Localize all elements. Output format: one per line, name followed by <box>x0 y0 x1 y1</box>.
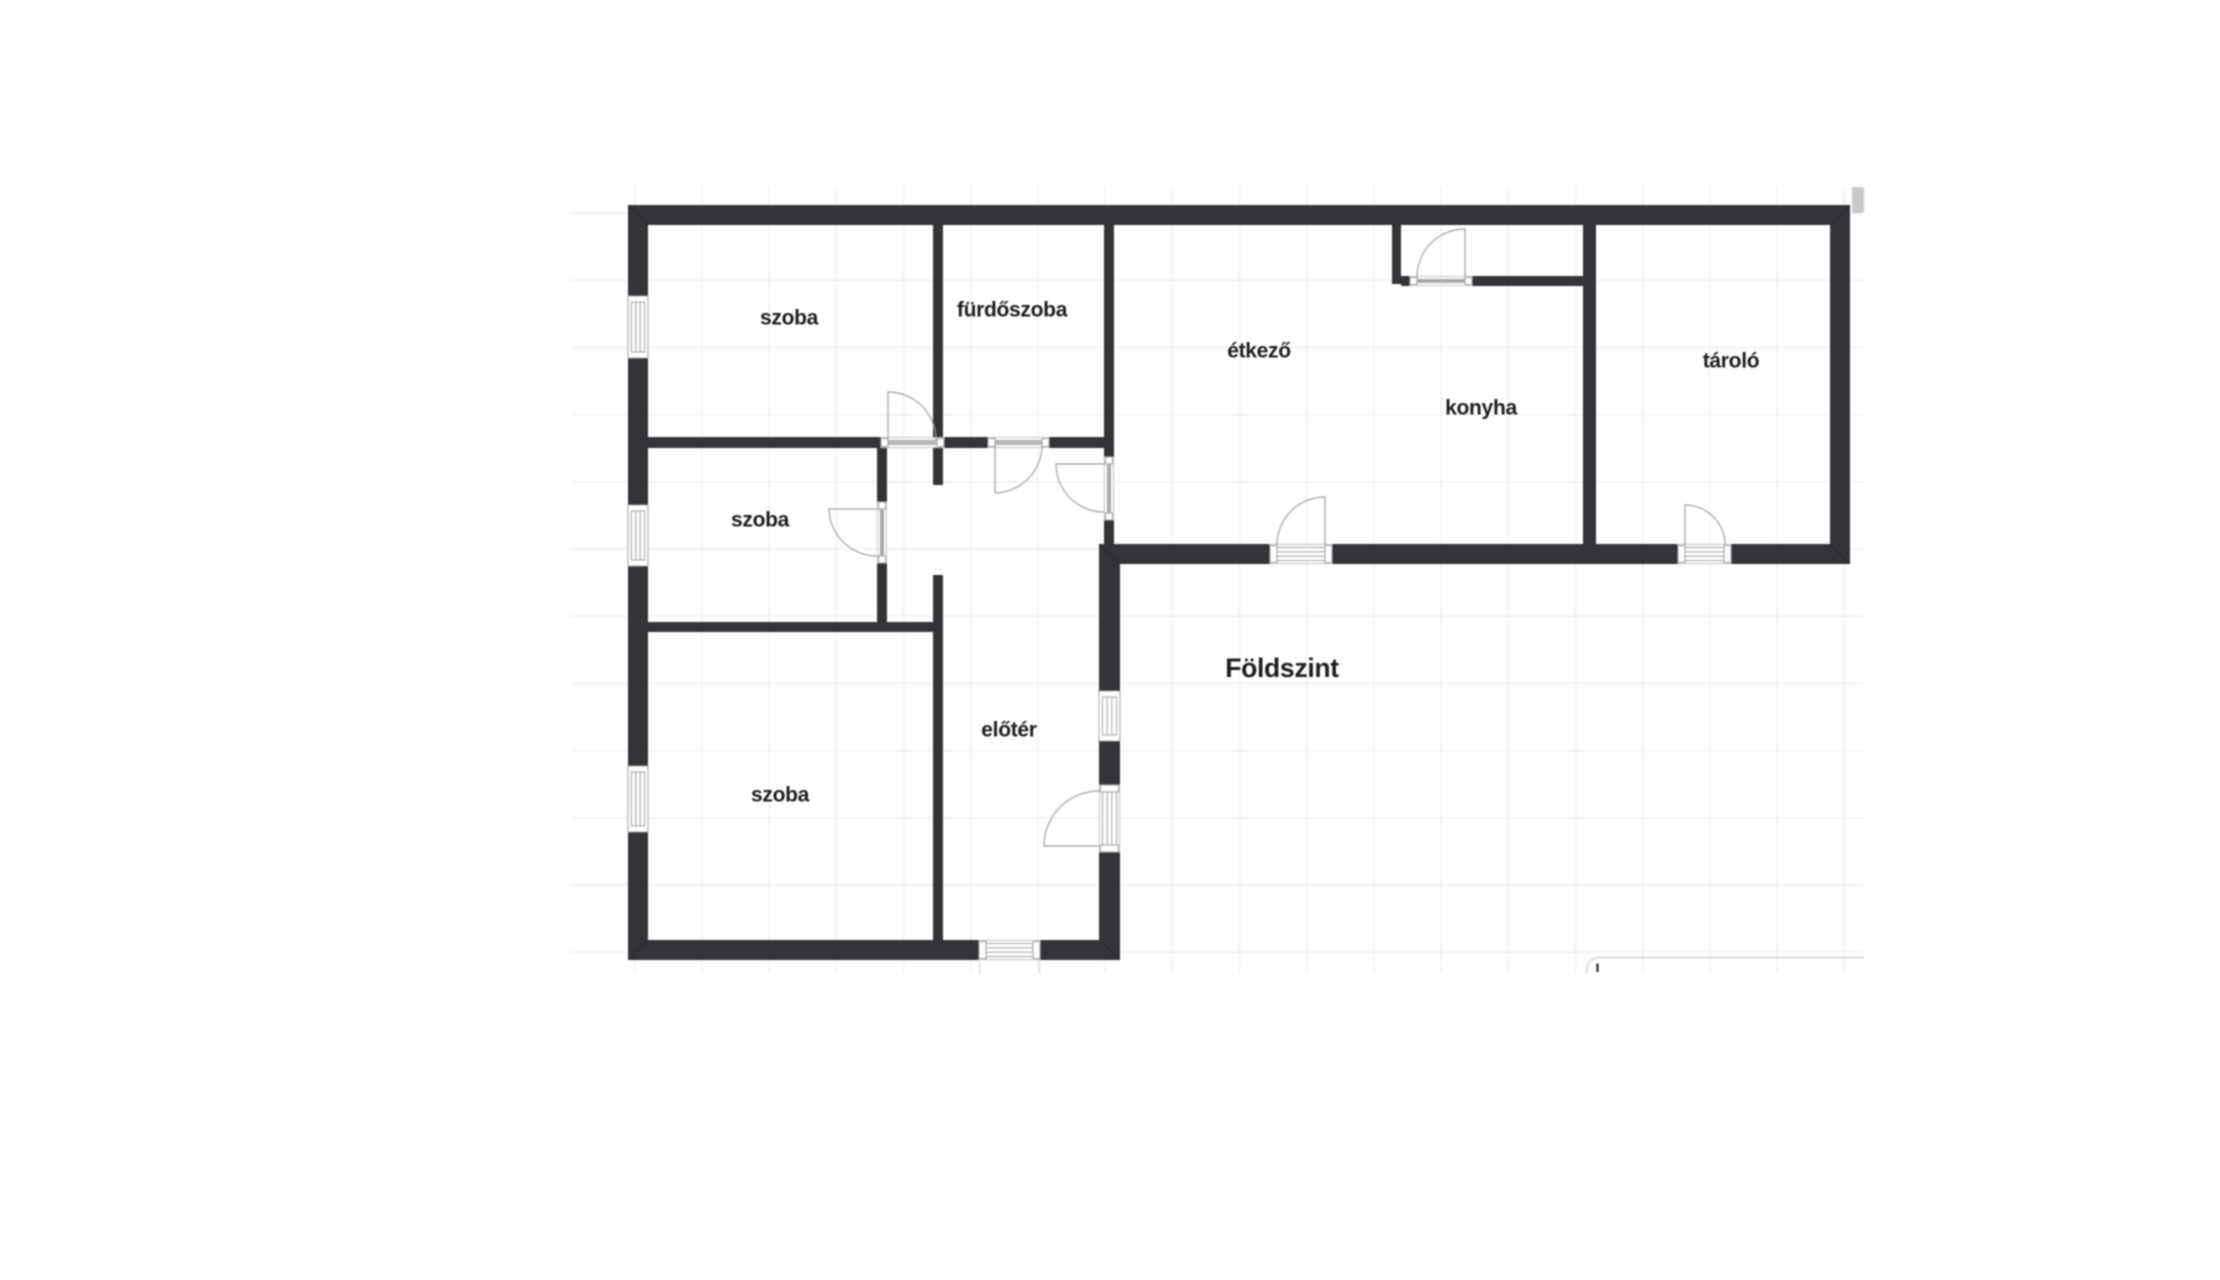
svg-text:konyha: konyha <box>1445 397 1517 420</box>
svg-text:szoba: szoba <box>731 509 790 532</box>
svg-text:szoba: szoba <box>760 307 819 330</box>
svg-text:étkező: étkező <box>1227 340 1291 363</box>
svg-text:előtér: előtér <box>981 719 1037 742</box>
svg-text:fürdőszoba: fürdőszoba <box>957 299 1068 322</box>
svg-text:tároló: tároló <box>1703 350 1760 373</box>
svg-text:szoba: szoba <box>751 784 810 807</box>
svg-text:Földszint: Földszint <box>1225 653 1339 683</box>
